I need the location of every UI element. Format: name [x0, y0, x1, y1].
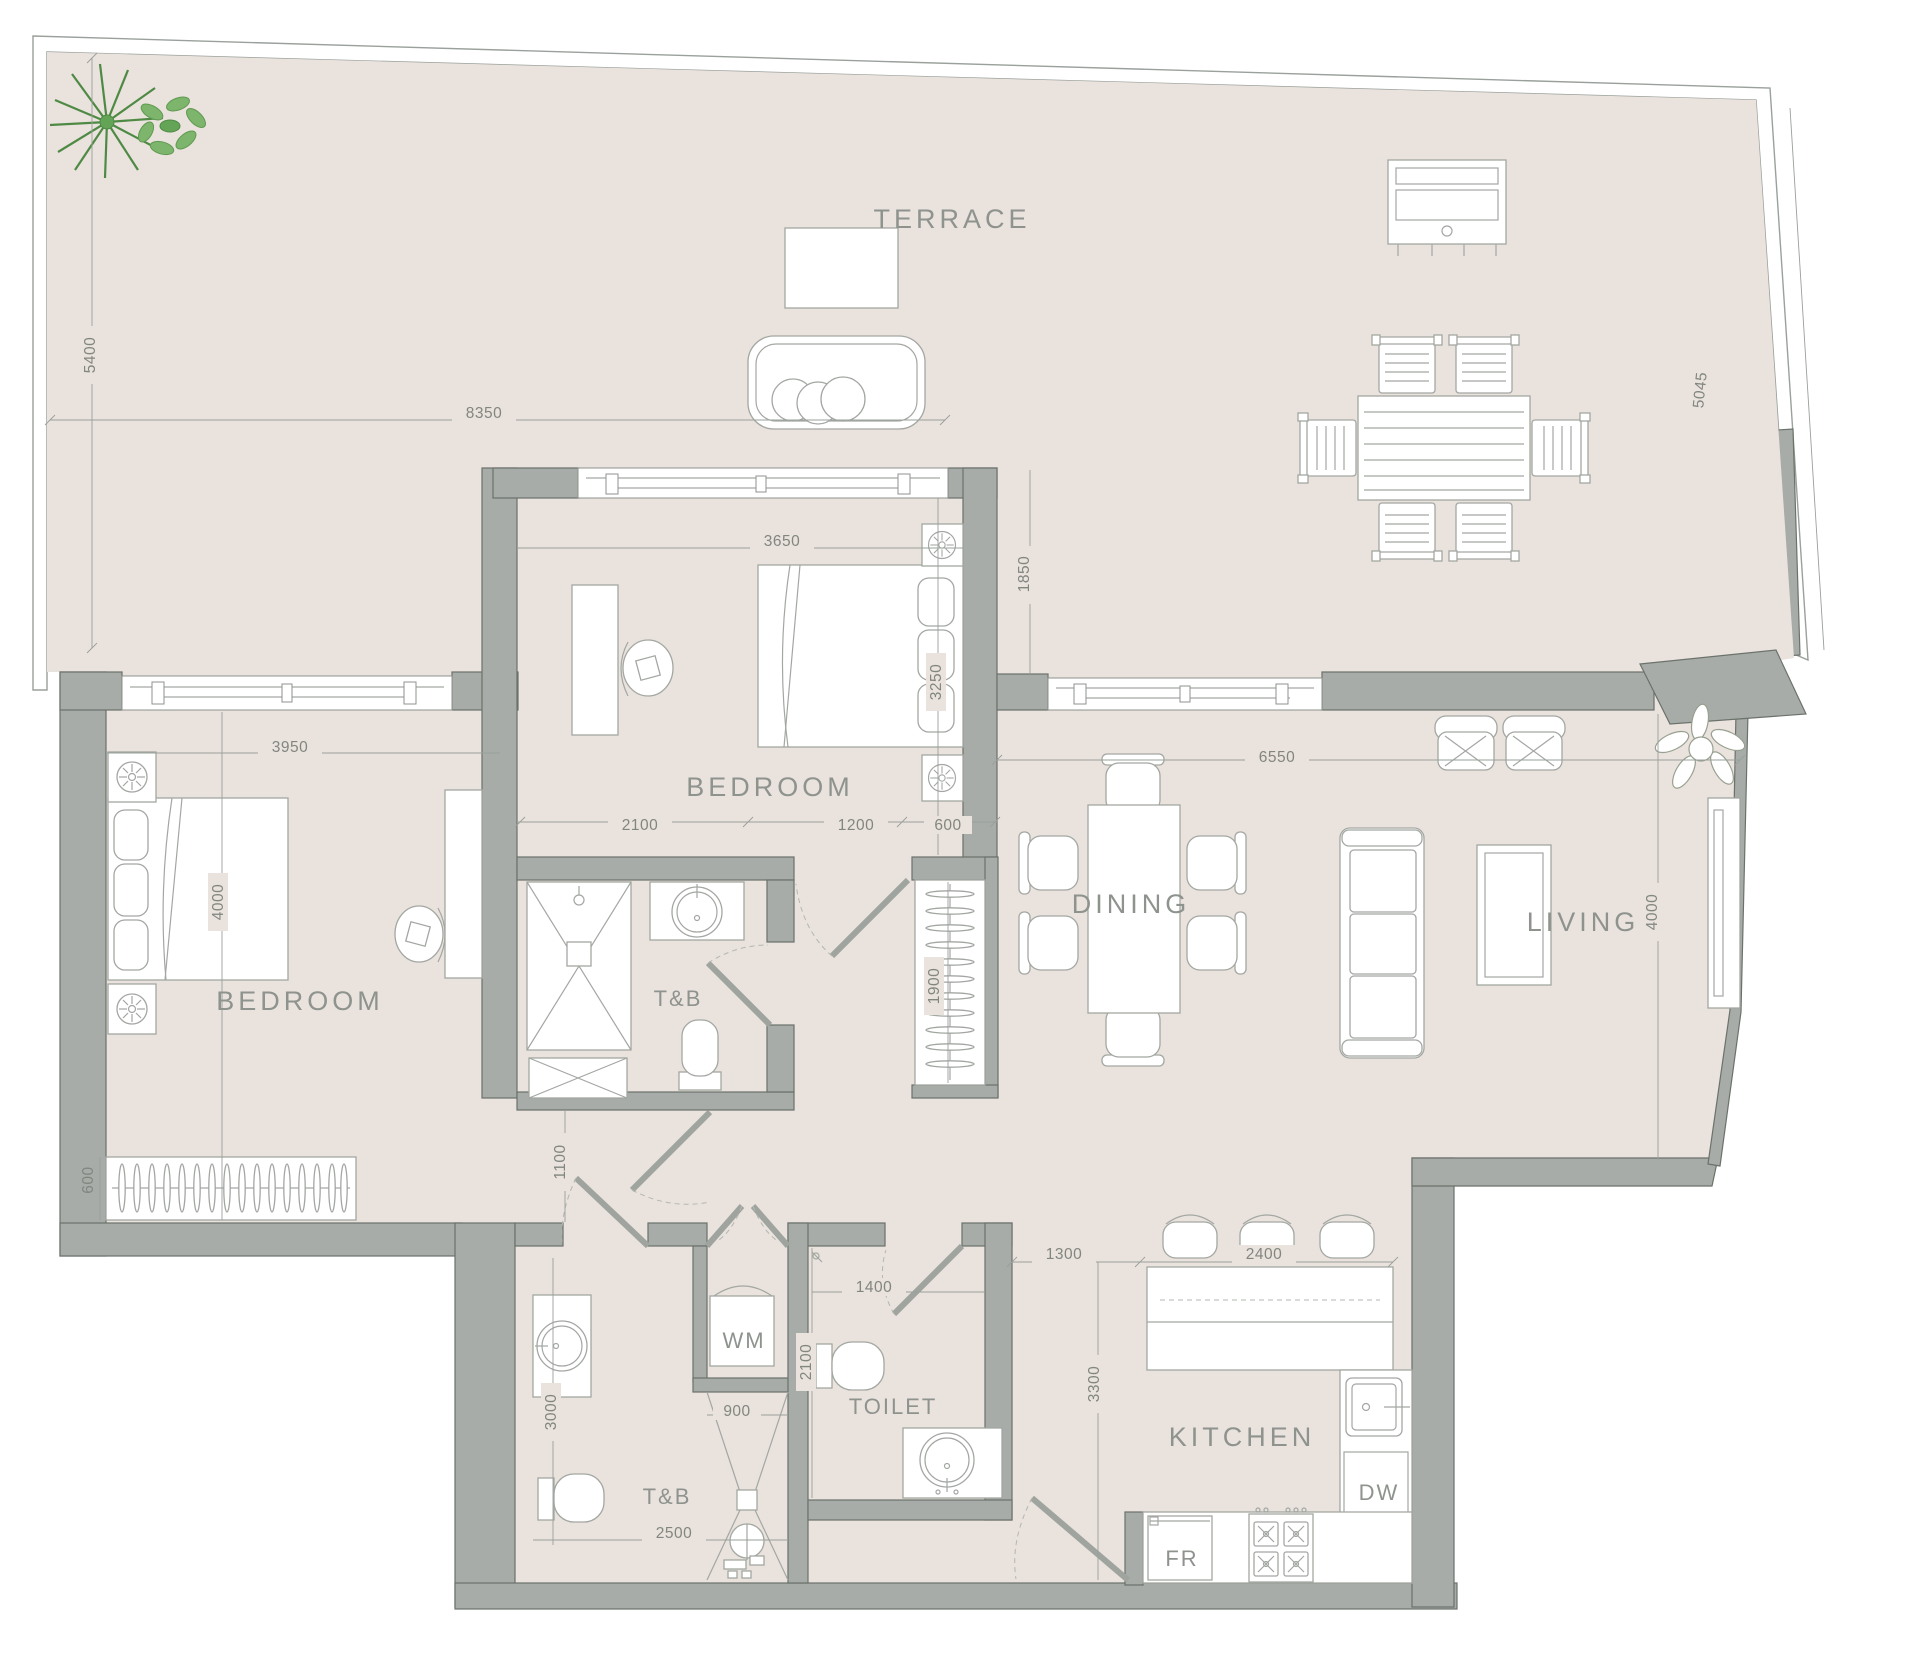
dim-bedroom2-seg3: 600	[934, 817, 961, 834]
dim-bedroom2-depth: 3250	[928, 664, 945, 700]
dim-tb2-width: 2500	[656, 1525, 692, 1542]
lamp-icon	[117, 994, 147, 1024]
terrace-bench	[748, 336, 925, 429]
bedroom1-window	[122, 676, 452, 710]
dim-terrace-left: 5400	[82, 337, 99, 373]
lamp-icon	[929, 765, 956, 792]
label-living: LIVING	[1527, 907, 1640, 937]
sofa	[1340, 828, 1424, 1058]
kitchen-sink-icon	[1346, 1378, 1410, 1436]
dim-bedroom2-seg1: 2100	[622, 817, 658, 834]
stove-icon	[1249, 1508, 1313, 1582]
desk	[445, 790, 482, 978]
wm-items	[710, 1286, 774, 1366]
dim-bedroom2-seg2: 1200	[838, 817, 874, 834]
bathroom-sink-icon	[650, 882, 744, 940]
shower-icon	[527, 882, 631, 1050]
toilet-icon	[538, 1474, 604, 1522]
dim-corridor: 1100	[552, 1144, 569, 1179]
dim-kitchen-depth: 3300	[1086, 1366, 1103, 1402]
island-counter	[1147, 1267, 1393, 1370]
dim-bedroom1-depth: 4000	[210, 884, 227, 920]
floor-plan-drawing: 5400 8350 5045 1850 3950 4000 600 3650 3…	[0, 0, 1920, 1654]
label-kitchen: KITCHEN	[1169, 1422, 1316, 1452]
dim-bedroom1-closet: 600	[80, 1166, 97, 1193]
label-tb-lower: T&B	[643, 1484, 692, 1509]
floor-plan-page: 5400 8350 5045 1850 3950 4000 600 3650 3…	[0, 0, 1920, 1654]
tv-console	[1708, 798, 1740, 1008]
armchair	[1435, 716, 1497, 770]
label-bedroom1: BEDROOM	[216, 986, 384, 1016]
dim-bedroom1-width: 3950	[272, 739, 308, 756]
dim-hall-closet: 1900	[926, 968, 943, 1004]
dim-living-width: 6550	[1259, 749, 1295, 766]
label-toilet: TOILET	[849, 1394, 938, 1419]
terrace-table	[785, 228, 898, 308]
armchair	[1503, 716, 1565, 770]
dim-terrace-width: 8350	[466, 405, 502, 422]
bathroom-sink-icon	[533, 1295, 591, 1397]
label-fr: FR	[1165, 1546, 1198, 1571]
lamp-icon	[929, 532, 956, 559]
dim-toilet-width: 1400	[856, 1279, 892, 1296]
toilet-icon	[816, 1342, 884, 1390]
label-dw: DW	[1359, 1480, 1400, 1505]
dim-kitchen-pass: 1300	[1046, 1246, 1082, 1263]
bathroom-sink-icon	[903, 1428, 1002, 1498]
label-terrace: TERRACE	[873, 204, 1030, 234]
dim-island: 2400	[1246, 1246, 1282, 1263]
label-dining: DINING	[1072, 889, 1191, 919]
dim-shower: 900	[723, 1403, 750, 1420]
dim-living-depth: 4000	[1644, 894, 1661, 930]
bedroom2-window	[578, 468, 948, 498]
dim-bedroom2-width: 3650	[764, 533, 800, 550]
dim-tb2-length: 3000	[543, 1394, 560, 1430]
toilet-icon	[679, 1020, 721, 1090]
dim-toilet-length: 2100	[798, 1344, 815, 1380]
label-tb-upper: T&B	[654, 986, 703, 1011]
dim-terrace-mid: 1850	[1016, 556, 1033, 592]
bed	[108, 798, 288, 980]
desk	[572, 585, 618, 735]
living-window	[1048, 678, 1322, 710]
closet-hangers	[106, 1157, 356, 1220]
bbq-grill	[1388, 160, 1506, 256]
label-bedroom2: BEDROOM	[686, 772, 854, 802]
label-wm: WM	[722, 1328, 765, 1353]
lamp-icon	[117, 762, 147, 792]
